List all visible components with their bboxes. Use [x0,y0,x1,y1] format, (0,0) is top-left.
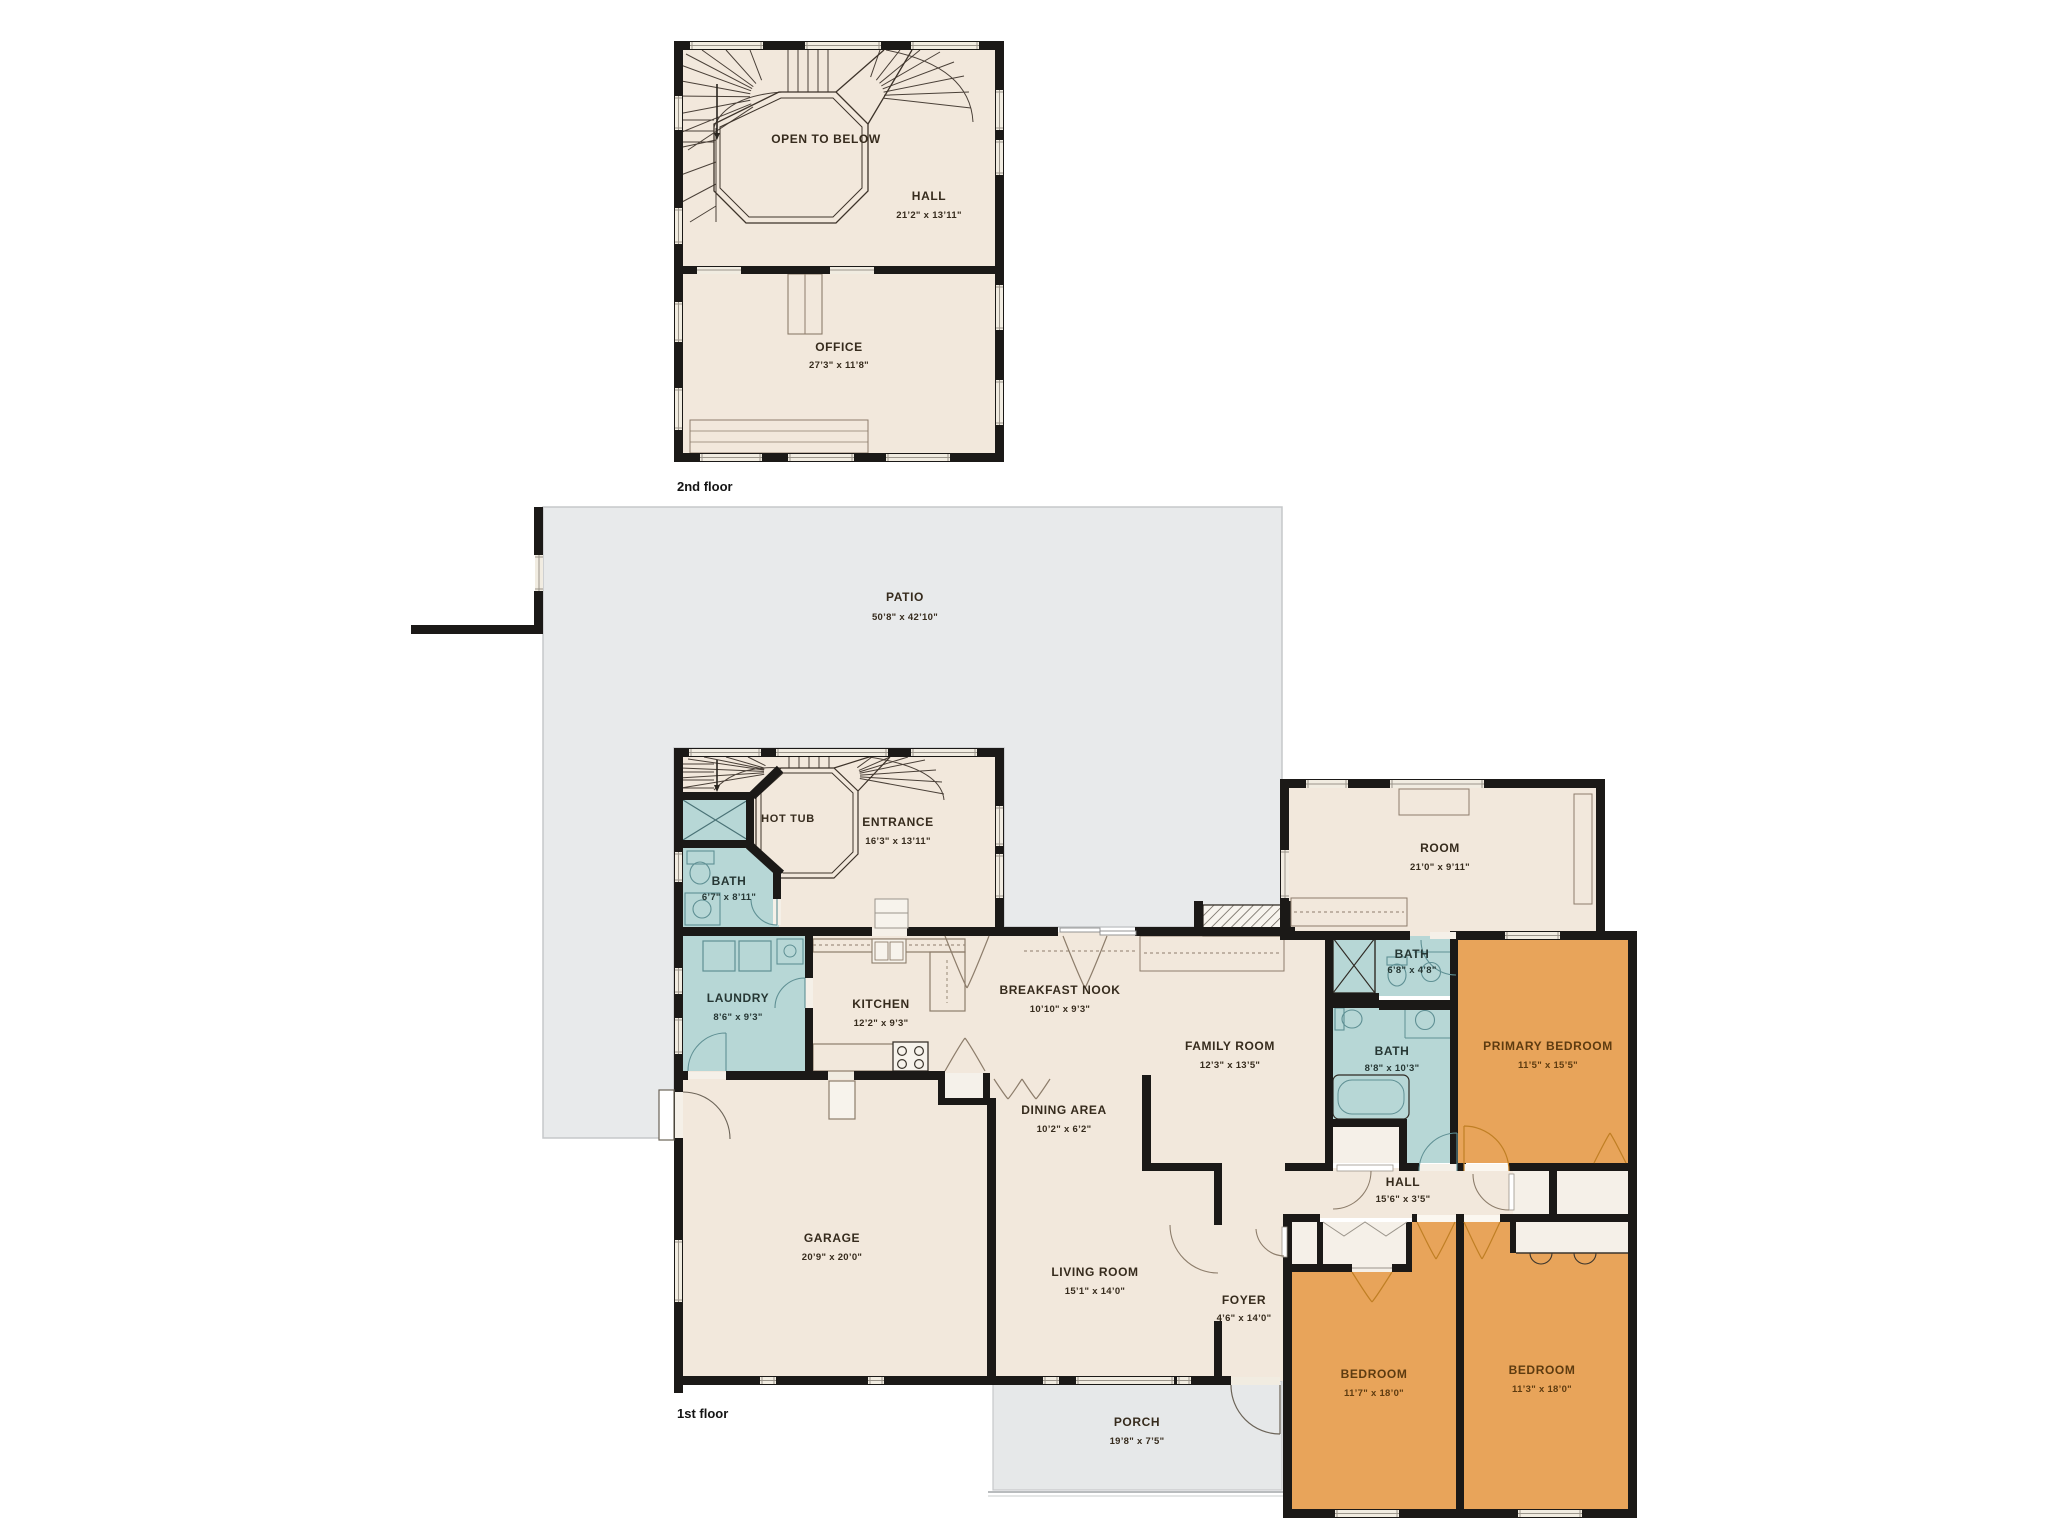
svg-text:21’2" x 13’11": 21’2" x 13’11" [896,210,962,221]
svg-text:11’5" x 15’5": 11’5" x 15’5" [1518,1060,1578,1071]
svg-text:50’8" x 42’10": 50’8" x 42’10" [872,612,938,623]
svg-text:8’8" x 10’3": 8’8" x 10’3" [1365,1063,1420,1074]
svg-text:11’7" x 18’0": 11’7" x 18’0" [1344,1388,1404,1399]
svg-text:BEDROOM: BEDROOM [1509,1363,1576,1377]
svg-text:BATH: BATH [1395,947,1430,961]
svg-text:10’10" x 9’3": 10’10" x 9’3" [1030,1004,1090,1015]
svg-text:ROOM: ROOM [1420,841,1460,855]
svg-text:4’6" x 14’0": 4’6" x 14’0" [1217,1313,1272,1324]
svg-text:FAMILY ROOM: FAMILY ROOM [1185,1039,1275,1053]
svg-text:ENTRANCE: ENTRANCE [862,815,933,829]
svg-text:6’8" x 4’8": 6’8" x 4’8" [1387,965,1436,976]
svg-text:27’3" x 11’8": 27’3" x 11’8" [809,360,869,371]
svg-text:HOT TUB: HOT TUB [761,813,815,825]
svg-text:1st floor: 1st floor [677,1406,728,1421]
svg-text:21’0" x 9’11": 21’0" x 9’11" [1410,862,1470,873]
svg-text:HALL: HALL [1386,1175,1420,1189]
svg-text:19’8" x 7’5": 19’8" x 7’5" [1110,1436,1165,1447]
svg-text:LAUNDRY: LAUNDRY [707,991,769,1005]
svg-text:20’9" x 20’0": 20’9" x 20’0" [802,1252,862,1263]
svg-text:11’3" x 18’0": 11’3" x 18’0" [1512,1384,1572,1395]
svg-text:BATH: BATH [712,874,747,888]
svg-text:16’3" x 13’11": 16’3" x 13’11" [865,836,931,847]
svg-text:PORCH: PORCH [1114,1415,1160,1429]
svg-text:LIVING ROOM: LIVING ROOM [1051,1265,1138,1279]
svg-text:FOYER: FOYER [1222,1293,1266,1307]
svg-text:12’2" x 9’3": 12’2" x 9’3" [854,1018,909,1029]
svg-text:OFFICE: OFFICE [815,340,863,354]
svg-text:15’1" x 14’0": 15’1" x 14’0" [1065,1286,1125,1297]
svg-text:BEDROOM: BEDROOM [1341,1367,1408,1381]
svg-text:15’6" x 3’5": 15’6" x 3’5" [1376,1194,1431,1205]
svg-text:OPEN TO BELOW: OPEN TO BELOW [771,132,881,146]
svg-text:10’2" x 6’2": 10’2" x 6’2" [1037,1124,1092,1135]
svg-text:8’6" x 9’3": 8’6" x 9’3" [713,1012,762,1023]
svg-text:12’3" x 13’5": 12’3" x 13’5" [1200,1060,1260,1071]
svg-text:BATH: BATH [1375,1044,1410,1058]
svg-text:GARAGE: GARAGE [804,1231,860,1245]
svg-text:DINING AREA: DINING AREA [1021,1103,1107,1117]
svg-text:KITCHEN: KITCHEN [852,997,910,1011]
svg-text:BREAKFAST NOOK: BREAKFAST NOOK [999,983,1120,997]
svg-text:6’7" x 8’11": 6’7" x 8’11" [702,892,756,903]
svg-text:PATIO: PATIO [886,590,924,604]
svg-text:2nd floor: 2nd floor [677,479,733,494]
svg-text:HALL: HALL [912,189,946,203]
svg-text:PRIMARY BEDROOM: PRIMARY BEDROOM [1483,1039,1613,1053]
